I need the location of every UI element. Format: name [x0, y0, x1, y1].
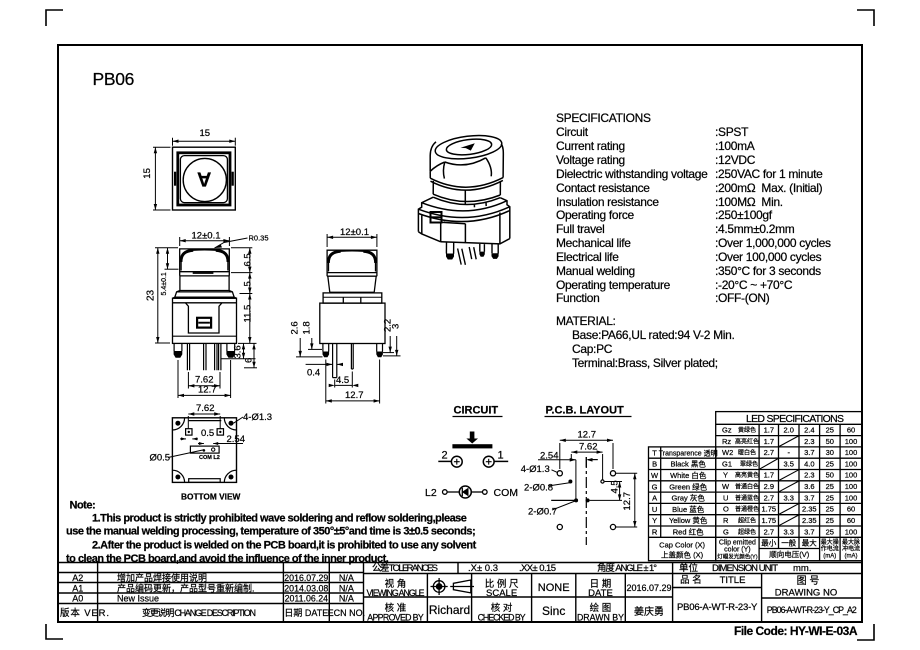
svg-text:Cap Color (X): Cap Color (X) [659, 541, 705, 550]
svg-text:3.3: 3.3 [783, 493, 793, 502]
svg-text:BOTTOM VIEW: BOTTOM VIEW [181, 492, 240, 502]
svg-text::OFF-(ON): :OFF-(ON) [715, 291, 770, 305]
svg-text:产品编码更新，产品型号重新编制.: 产品编码更新，产品型号重新编制. [117, 583, 255, 594]
svg-text::350°C for 3 seconds: :350°C for 3 seconds [715, 264, 821, 278]
svg-text:MATERIAL:: MATERIAL: [556, 314, 616, 328]
svg-text:超红色: 超红色 [738, 516, 756, 524]
svg-text:PB06: PB06 [93, 69, 135, 89]
svg-text:超绿色: 超绿色 [738, 528, 756, 536]
svg-text:PB06-A-WT-R-23-Y_CP_A2: PB06-A-WT-R-23-Y_CP_A2 [767, 605, 857, 615]
svg-text:25: 25 [826, 493, 834, 502]
svg-text:.XX± 0.15: .XX± 0.15 [519, 563, 556, 574]
svg-text:2011.06.24: 2011.06.24 [285, 594, 328, 604]
svg-text:1.8: 1.8 [302, 321, 313, 334]
svg-text:3.7: 3.7 [804, 493, 814, 502]
svg-text:Cap:PC: Cap:PC [572, 342, 613, 356]
svg-text:Gray 灰色: Gray 灰色 [672, 493, 706, 503]
svg-text:0.4: 0.4 [307, 368, 320, 379]
svg-text:2016.07.29: 2016.07.29 [284, 573, 328, 583]
svg-text:O: O [723, 505, 729, 514]
svg-text:100: 100 [845, 493, 858, 502]
svg-text:2.3: 2.3 [804, 437, 814, 446]
svg-text:3.7: 3.7 [804, 448, 814, 457]
svg-text:作电流: 作电流 [821, 544, 839, 552]
svg-text:3: 3 [390, 324, 401, 329]
svg-text:2.7: 2.7 [764, 528, 774, 537]
svg-text:Insulation resistance: Insulation resistance [556, 195, 659, 209]
svg-text:Red 红色: Red 红色 [673, 527, 704, 537]
svg-text:50: 50 [826, 437, 834, 446]
svg-text:最大: 最大 [802, 538, 817, 548]
svg-text:2.9: 2.9 [764, 482, 774, 491]
svg-text:冲电流: 冲电流 [842, 544, 860, 552]
svg-text:Gz: Gz [722, 426, 732, 435]
svg-text:增加产品焊接使用说明: 增加产品焊接使用说明 [117, 572, 207, 583]
svg-text:3.7: 3.7 [804, 528, 814, 537]
svg-text:Function: Function [556, 291, 599, 305]
svg-text:100: 100 [845, 448, 858, 457]
svg-text:U: U [723, 493, 728, 502]
svg-text:15: 15 [142, 168, 153, 179]
svg-text:1.7: 1.7 [764, 437, 774, 446]
svg-text:顺向电压(V): 顺向电压(V) [769, 549, 809, 559]
svg-text:高亮黄色: 高亮黄色 [735, 471, 759, 479]
svg-text:12.7: 12.7 [578, 430, 597, 441]
svg-text:(mA): (mA) [823, 554, 836, 560]
svg-text:上盖颜色 (X): 上盖颜色 (X) [661, 550, 704, 560]
svg-text:4-Ø1.3: 4-Ø1.3 [521, 464, 550, 475]
svg-text:Black 黑色: Black 黑色 [670, 459, 706, 469]
svg-text:DRAWING NO: DRAWING NO [775, 588, 837, 599]
svg-text:2.0: 2.0 [783, 426, 793, 435]
svg-text:G: G [652, 482, 658, 491]
svg-text:Richard: Richard [429, 603, 470, 617]
svg-text:60: 60 [847, 505, 855, 514]
svg-text:ECN NO.: ECN NO. [328, 608, 366, 618]
svg-text:L2: L2 [425, 487, 437, 499]
svg-text:5: 5 [243, 281, 254, 286]
svg-text:版本 VER.: 版本 VER. [60, 607, 109, 619]
svg-text:角度 ANGLE ± 1°: 角度 ANGLE ± 1° [597, 562, 657, 574]
svg-text:New Issue: New Issue [117, 594, 159, 604]
svg-text:G: G [723, 528, 729, 537]
svg-text:2.3: 2.3 [804, 471, 814, 480]
svg-text:2.35: 2.35 [802, 516, 817, 525]
svg-text:Base:PA66,UL rated:94 V-2 Min.: Base:PA66,UL rated:94 V-2 Min. [572, 328, 735, 342]
svg-text::4.5mm±0.2mm: :4.5mm±0.2mm [715, 222, 795, 236]
svg-text:2016.07.29: 2016.07.29 [626, 583, 671, 593]
svg-text:NONE: NONE [538, 582, 570, 594]
svg-text:W: W [722, 482, 730, 491]
svg-text:N/A: N/A [339, 573, 354, 583]
svg-text:2014.03.08: 2014.03.08 [284, 584, 328, 594]
svg-text:A: A [197, 168, 211, 190]
svg-text:PB06-A-WT-R-23-Y: PB06-A-WT-R-23-Y [677, 602, 758, 613]
svg-text:2: 2 [442, 450, 448, 462]
svg-text:DIMENSION UNIT: DIMENSION UNIT [712, 563, 778, 574]
svg-text:A: A [652, 494, 657, 503]
svg-text:(mA): (mA) [845, 554, 858, 560]
svg-text:R0.35: R0.35 [249, 233, 269, 242]
svg-text:Circuit: Circuit [556, 125, 589, 139]
svg-text:黄绿色: 黄绿色 [738, 426, 756, 434]
svg-text:普通橙色: 普通橙色 [735, 505, 759, 513]
svg-text:Note:: Note: [70, 500, 96, 512]
svg-text:25: 25 [826, 426, 834, 435]
svg-text:A2: A2 [72, 573, 83, 583]
svg-text:最小: 最小 [761, 539, 776, 548]
svg-text:.X± 0.3: .X± 0.3 [468, 563, 498, 574]
svg-text:25: 25 [826, 528, 834, 537]
svg-text:3.5: 3.5 [783, 459, 793, 468]
svg-text:25: 25 [826, 505, 834, 514]
svg-text:2.6: 2.6 [290, 321, 301, 334]
svg-text:color (Y): color (Y) [724, 547, 750, 554]
svg-text:Y: Y [723, 471, 728, 480]
svg-text:4-Ø1.3: 4-Ø1.3 [243, 412, 272, 423]
svg-text:50: 50 [826, 471, 834, 480]
svg-text:Operating temperature: Operating temperature [556, 278, 671, 292]
svg-text:变更说明 CHANGE DESCRIPTION: 变更说明 CHANGE DESCRIPTION [142, 607, 256, 618]
svg-text:单位: 单位 [679, 562, 699, 574]
svg-text:12.7: 12.7 [622, 492, 633, 511]
svg-text:2.7: 2.7 [764, 493, 774, 502]
svg-text:VIEWING ANGLE: VIEWING ANGLE [367, 588, 425, 598]
svg-text:2.35: 2.35 [802, 505, 817, 514]
svg-text:COM: COM [494, 487, 519, 499]
svg-text:3.3: 3.3 [783, 528, 793, 537]
svg-text:N/A: N/A [339, 584, 354, 594]
svg-text:2.4: 2.4 [804, 426, 814, 435]
svg-text:1.75: 1.75 [761, 516, 776, 525]
svg-text:25: 25 [826, 516, 834, 525]
svg-text:CHECKED BY: CHECKED BY [478, 613, 526, 623]
svg-text:Dielectric withstanding voltag: Dielectric withstanding voltage [556, 167, 708, 181]
svg-text:N/A: N/A [339, 594, 354, 604]
svg-text:Mechanical life: Mechanical life [556, 236, 631, 250]
svg-text:A1: A1 [72, 584, 83, 594]
svg-text:U: U [652, 505, 657, 514]
svg-text:最大脉: 最大脉 [842, 538, 860, 546]
svg-text:A0: A0 [72, 594, 83, 604]
svg-text:TITLE: TITLE [720, 575, 746, 586]
svg-text:12.7: 12.7 [345, 390, 364, 401]
svg-text:25: 25 [826, 459, 834, 468]
svg-text:灯帽发光颜色(Y): 灯帽发光颜色(Y) [717, 553, 758, 561]
svg-text:30: 30 [826, 448, 834, 457]
svg-text:B: B [652, 460, 657, 469]
svg-text:暖白色: 暖白色 [738, 449, 756, 457]
svg-text:7.62: 7.62 [579, 441, 598, 452]
svg-text:Ø0.5: Ø0.5 [150, 453, 171, 464]
svg-text:Operating force: Operating force [556, 208, 635, 222]
svg-text:R: R [723, 516, 729, 525]
svg-text:6.5: 6.5 [243, 253, 254, 266]
svg-text:1: 1 [498, 450, 504, 462]
svg-text:7.62: 7.62 [196, 403, 215, 414]
svg-text:25: 25 [826, 482, 834, 491]
svg-text:普通蓝色: 普通蓝色 [735, 494, 759, 502]
svg-text:100: 100 [845, 528, 858, 537]
svg-text:W: W [651, 471, 659, 480]
svg-text:Y: Y [652, 516, 657, 525]
svg-text:公差 TOLERANCES: 公差 TOLERANCES [372, 562, 438, 574]
svg-text::SPST: :SPST [715, 125, 749, 139]
svg-text:DATE: DATE [588, 588, 613, 599]
svg-text:Full travel: Full travel [556, 222, 605, 236]
svg-text:4.0: 4.0 [804, 459, 814, 468]
svg-text:4.5: 4.5 [336, 375, 349, 386]
svg-text:COM L2: COM L2 [199, 455, 220, 461]
svg-text:White 白色: White 白色 [670, 470, 707, 480]
svg-text:Green 绿色: Green 绿色 [669, 481, 707, 491]
svg-text:Voltage rating: Voltage rating [556, 153, 625, 167]
svg-text:File Code: HY-WI-E-03A: File Code: HY-WI-E-03A [734, 624, 858, 638]
svg-text::100MΩ Min.: :100MΩ Min. [715, 195, 783, 209]
svg-text:DRAWN BY: DRAWN BY [577, 613, 624, 623]
svg-text:翠绿色: 翠绿色 [740, 460, 758, 468]
svg-text:2.7: 2.7 [764, 448, 774, 457]
svg-text:SPECIFICATIONS: SPECIFICATIONS [556, 111, 651, 125]
svg-text:60: 60 [847, 516, 855, 525]
svg-text::Over 1,000,000 cycles: :Over 1,000,000 cycles [715, 236, 831, 250]
svg-text::12VDC: :12VDC [715, 153, 756, 167]
svg-text:品 名: 品 名 [680, 574, 702, 586]
svg-text:R: R [652, 528, 658, 537]
svg-text:12.7: 12.7 [198, 385, 217, 396]
svg-text:0.5: 0.5 [201, 428, 214, 439]
svg-text:mm.: mm. [793, 563, 811, 574]
svg-text:1.7: 1.7 [764, 471, 774, 480]
svg-text:3.6: 3.6 [804, 482, 814, 491]
svg-text::-20°C ~ +70°C: :-20°C ~ +70°C [715, 278, 793, 292]
svg-text:P.C.B. LAYOUT: P.C.B. LAYOUT [546, 405, 625, 417]
svg-text:SCALE: SCALE [486, 588, 517, 599]
svg-text:LED SPECIFICATIONS: LED SPECIFICATIONS [746, 413, 844, 425]
svg-text:Clip emitted: Clip emitted [719, 540, 756, 547]
svg-text:Transparence 透明: Transparence 透明 [659, 449, 718, 457]
svg-text:图 号: 图 号 [797, 575, 820, 587]
svg-text:Manual welding: Manual welding [556, 264, 635, 278]
svg-text:use the manual welding process: use the manual welding processing, tempe… [66, 526, 475, 538]
svg-text:高亮红色: 高亮红色 [735, 437, 759, 445]
svg-text:15: 15 [200, 128, 211, 139]
svg-text:Rz: Rz [722, 437, 731, 446]
svg-text:2-Ø0.8: 2-Ø0.8 [524, 483, 553, 494]
svg-text:日期 DATE: 日期 DATE [284, 608, 328, 618]
svg-text::Over 100,000 cycles: :Over 100,000 cycles [715, 250, 822, 264]
svg-text:100: 100 [845, 437, 858, 446]
svg-text:Current rating: Current rating [556, 139, 625, 153]
svg-text:2-Ø0.7: 2-Ø0.7 [528, 507, 557, 518]
svg-text:一般: 一般 [781, 538, 796, 548]
svg-text::200mΩ Max. (Initial): :200mΩ Max. (Initial) [715, 181, 823, 195]
svg-text:12±0.1: 12±0.1 [340, 227, 369, 238]
svg-text:Terminal:Brass, Silver plated;: Terminal:Brass, Silver plated; [572, 356, 718, 370]
svg-text:CIRCUIT: CIRCUIT [454, 405, 499, 417]
svg-text:Blue 蓝色: Blue 蓝色 [672, 504, 705, 514]
svg-text:100: 100 [845, 459, 858, 468]
svg-text:100: 100 [845, 482, 858, 491]
svg-text:60: 60 [847, 426, 855, 435]
svg-text:APPROVED BY: APPROVED BY [367, 613, 424, 623]
svg-text:12±0.1: 12±0.1 [192, 230, 221, 241]
svg-text:1.This product is strictly pro: 1.This product is strictly prohibited wa… [92, 513, 467, 525]
svg-text:5.4±0.1: 5.4±0.1 [161, 272, 168, 295]
svg-text:1.7: 1.7 [764, 426, 774, 435]
svg-text:姜庆勇: 姜庆勇 [634, 605, 664, 618]
svg-text:W2: W2 [722, 448, 733, 457]
svg-text:Contact resistance: Contact resistance [556, 181, 650, 195]
svg-text:100: 100 [845, 471, 858, 480]
svg-text::250VAC for 1 minute: :250VAC for 1 minute [715, 167, 823, 181]
svg-text:3.6: 3.6 [233, 345, 244, 358]
svg-text:Sinc: Sinc [542, 604, 565, 618]
svg-text:Electrical life: Electrical life [556, 250, 619, 264]
svg-text::100mA: :100mA [715, 139, 755, 153]
svg-text:23: 23 [146, 289, 157, 301]
svg-text:T: T [652, 448, 657, 457]
svg-text:G1: G1 [722, 459, 732, 468]
svg-text:Yellow 黄色: Yellow 黄色 [669, 515, 708, 525]
svg-text:最大操: 最大操 [821, 538, 839, 546]
svg-text:2.After the product is welded: 2.After the product is welded on the PCB… [92, 540, 477, 552]
svg-text:1.75: 1.75 [761, 505, 776, 514]
svg-text::250±100gf: :250±100gf [715, 208, 773, 222]
svg-text:11.5: 11.5 [243, 305, 254, 323]
svg-text:普通白色: 普通白色 [735, 483, 759, 491]
